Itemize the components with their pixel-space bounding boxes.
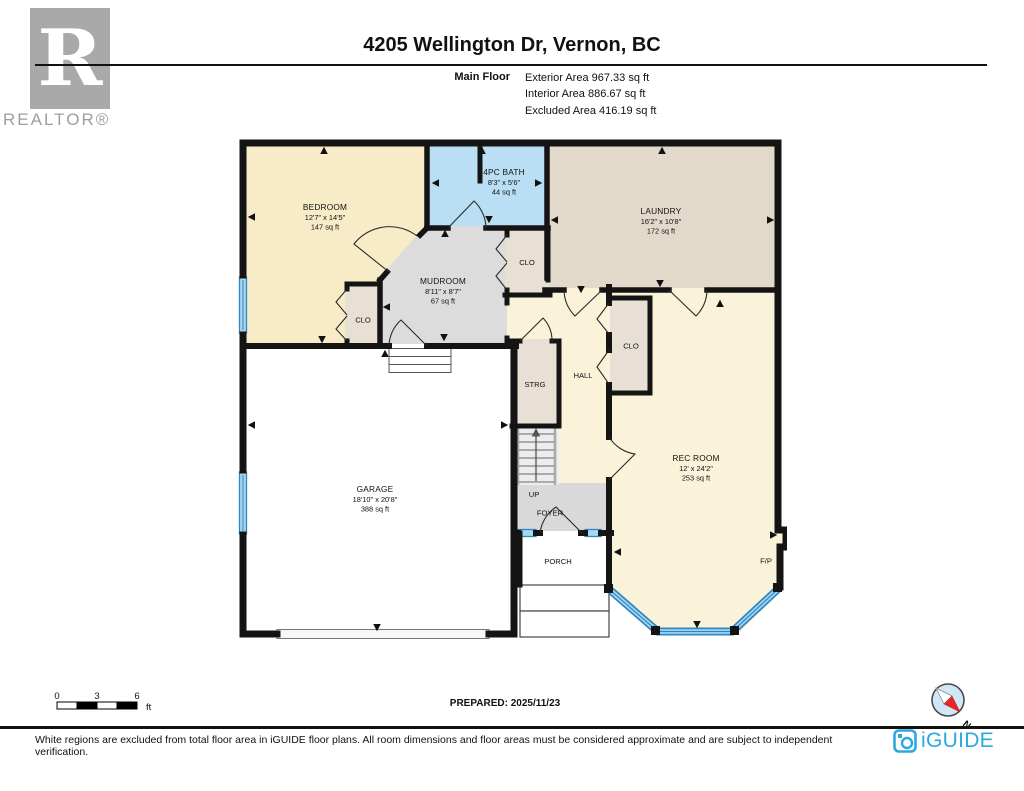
realtor-logo-letter: R — [38, 20, 103, 98]
footer-divider — [0, 726, 1024, 729]
prepared-date: PREPARED: 2025/11/23 — [400, 698, 610, 709]
laundry-dims: 16'2" x 10'8" — [641, 217, 682, 226]
scale-unit: ft — [146, 702, 152, 713]
scale-start: 0 — [54, 691, 59, 702]
fireplace-label: F/P — [760, 557, 772, 566]
floor-label: Main Floor — [380, 71, 510, 83]
bedroom-area: 147 sq ft — [311, 223, 339, 232]
footer-disclaimer: White regions are excluded from total fl… — [35, 734, 865, 758]
scale-bar: 0 3 6 ft — [50, 688, 170, 725]
garage-area: 388 sq ft — [361, 505, 389, 514]
bedroom-dims: 12'7" x 14'5" — [305, 213, 346, 222]
mudroom-area: 67 sq ft — [431, 297, 455, 306]
hall-label: HALL — [574, 371, 593, 380]
scale-mid: 3 — [94, 691, 99, 702]
iguide-logo-icon — [893, 729, 917, 753]
iguide-brand-text: iGUIDE — [921, 729, 994, 753]
closet-top-label: CLO — [519, 258, 535, 267]
bath-dims: 8'3" x 5'6" — [488, 178, 521, 187]
iguide-brand: iGUIDE — [893, 729, 994, 753]
bath-name: 4PC BATH — [483, 167, 525, 177]
realtor-logo: R — [30, 8, 110, 109]
foyer-label: FOYER — [537, 509, 564, 518]
laundry-name: LAUNDRY — [641, 206, 682, 216]
porch-step-2 — [520, 611, 609, 637]
realtor-logo-text: REALTOR® — [3, 110, 133, 130]
scale-end: 6 — [134, 691, 139, 702]
rec-room-dims: 12' x 24'2" — [679, 464, 713, 473]
floor-plan-svg: BEDROOM 12'7" x 14'5" 147 sq ft 4PC BATH… — [237, 135, 787, 650]
garage-dims: 18'10" x 20'8" — [353, 495, 398, 504]
porch-label: PORCH — [544, 557, 571, 566]
staircase — [514, 426, 559, 485]
porch-step-1 — [520, 585, 609, 611]
page-title: 4205 Wellington Dr, Vernon, BC — [0, 34, 1024, 57]
garage-door — [277, 630, 489, 639]
exterior-area: Exterior Area 967.33 sq ft — [525, 70, 656, 86]
garage-name: GARAGE — [357, 484, 394, 494]
laundry-area: 172 sq ft — [647, 227, 675, 236]
excluded-area: Excluded Area 416.19 sq ft — [525, 103, 656, 119]
bath-area: 44 sq ft — [492, 188, 516, 197]
closet-bedroom-label: CLO — [355, 316, 371, 325]
floor-plan: BEDROOM 12'7" x 14'5" 147 sq ft 4PC BATH… — [237, 135, 787, 650]
area-summary: Exterior Area 967.33 sq ft Interior Area… — [525, 70, 656, 119]
mudroom-steps — [389, 349, 451, 373]
up-label: UP — [529, 490, 540, 499]
mudroom-dims: 8'11" x 8'7" — [425, 287, 461, 296]
interior-area: Interior Area 886.67 sq ft — [525, 86, 656, 102]
closet-hall-label: CLO — [623, 342, 639, 351]
rec-room-name: REC ROOM — [672, 453, 719, 463]
bedroom-name: BEDROOM — [303, 202, 347, 212]
header-divider — [35, 64, 987, 66]
storage-label: STRG — [524, 380, 545, 389]
rec-room-area: 253 sq ft — [682, 474, 710, 483]
mudroom-name: MUDROOM — [420, 276, 466, 286]
